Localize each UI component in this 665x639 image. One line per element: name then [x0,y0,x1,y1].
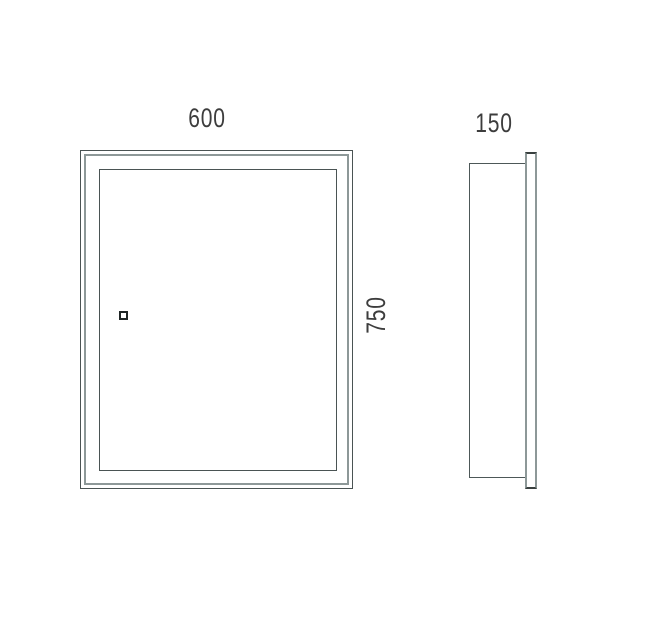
mirror-inner-edge [99,169,337,471]
dimension-label-height: 750 [361,285,391,345]
mirror-panel-side-view [525,152,537,489]
technical-drawing-canvas: 600 150 750 [0,0,665,639]
cabinet-body-side-view [469,163,526,478]
dimension-width-value: 600 [188,103,225,133]
mirror-front-view [80,150,353,489]
dimension-depth-value: 150 [475,108,512,138]
touch-switch-icon [119,311,128,320]
dimension-label-width: 600 [157,103,257,133]
dimension-height-value: 750 [361,296,391,333]
dimension-label-depth: 150 [444,108,544,138]
